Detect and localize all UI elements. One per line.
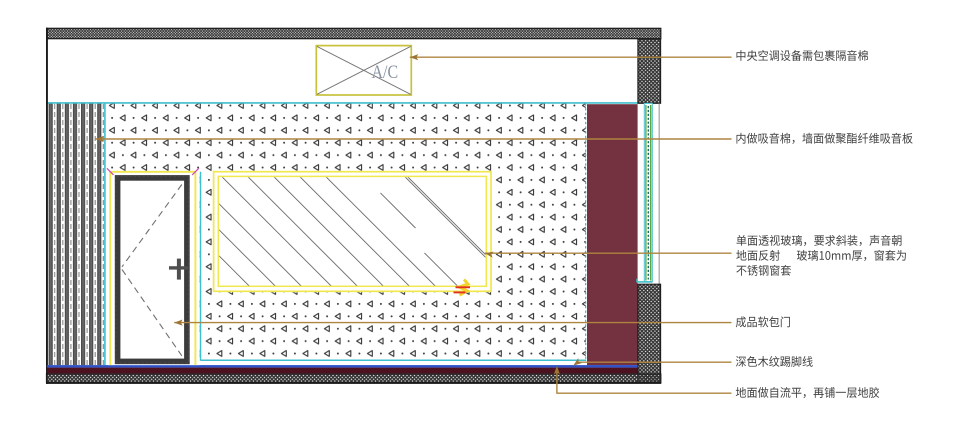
svg-text:A/C: A/C <box>372 61 399 83</box>
